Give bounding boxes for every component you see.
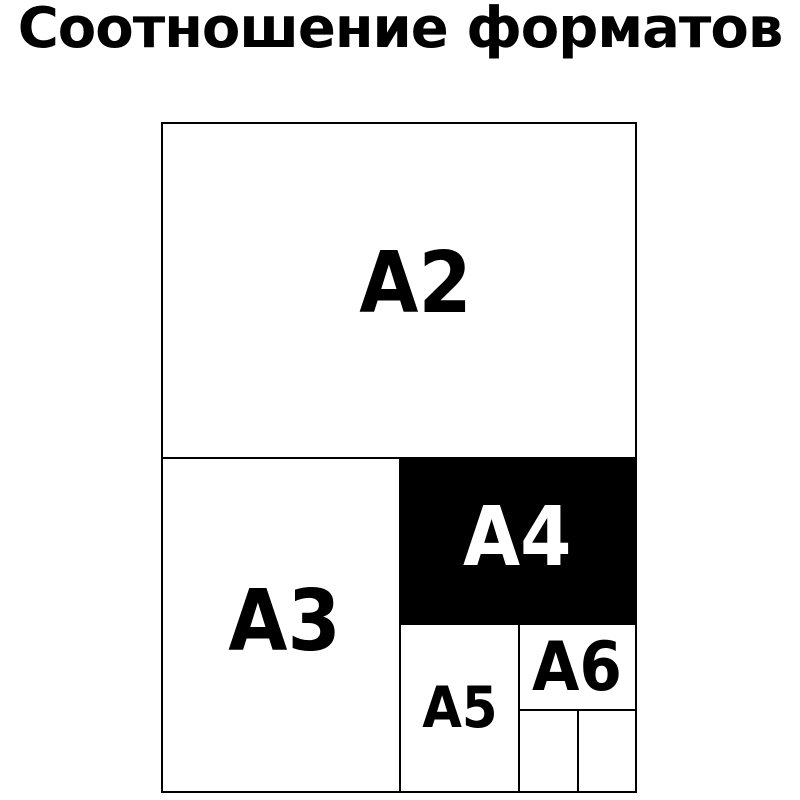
- diagram-canvas: Соотношение форматов A2 A3 A4 A5 A6: [0, 0, 800, 800]
- format-label-a5: A5: [422, 680, 497, 737]
- format-label-a4: A4: [463, 497, 571, 579]
- format-cell-a4: A4: [401, 459, 635, 625]
- format-label-a3: A3: [228, 579, 340, 664]
- page-title: Соотношение форматов: [0, 0, 800, 62]
- format-cell-a2: A2: [163, 124, 635, 459]
- format-label-a2: A2: [359, 241, 471, 326]
- format-cell-a5: A5: [401, 625, 520, 791]
- format-label-a6: A6: [532, 634, 622, 702]
- format-cell-a6: A6: [520, 625, 635, 711]
- format-cell-small-right: [579, 711, 635, 791]
- format-cell-a3: A3: [163, 459, 401, 791]
- format-comparison-figure: A2 A3 A4 A5 A6: [161, 122, 637, 793]
- format-cell-small-left: [520, 711, 579, 791]
